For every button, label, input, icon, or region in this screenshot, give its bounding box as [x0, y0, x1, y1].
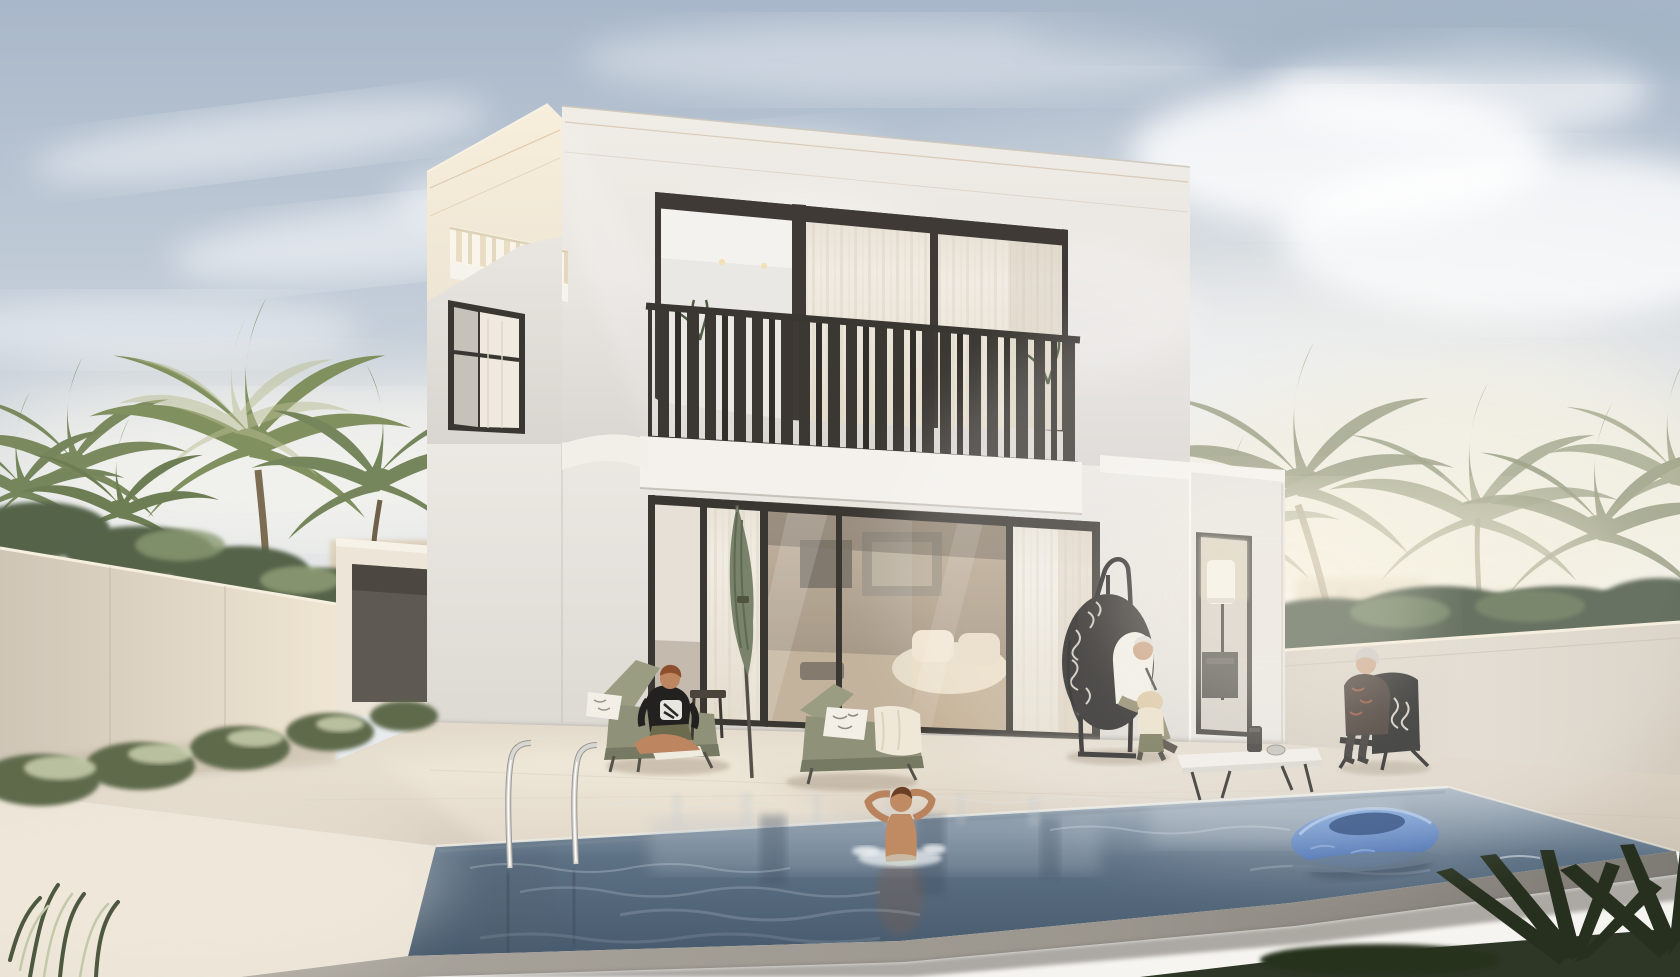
villa-render — [0, 0, 1680, 977]
scene-canvas — [0, 0, 1680, 977]
child-waterline — [883, 854, 919, 866]
ladder-reflection — [507, 872, 509, 955]
splash — [852, 846, 880, 856]
umbrella-tie — [737, 596, 749, 603]
ladder-reflection — [573, 870, 575, 945]
downlight — [719, 259, 725, 265]
patterned-pillow — [823, 707, 868, 740]
downlight — [761, 263, 767, 269]
splash — [922, 844, 946, 854]
pillow — [586, 692, 622, 720]
sun-core-glow — [1110, 480, 1430, 720]
tower-upper-window — [448, 300, 525, 434]
